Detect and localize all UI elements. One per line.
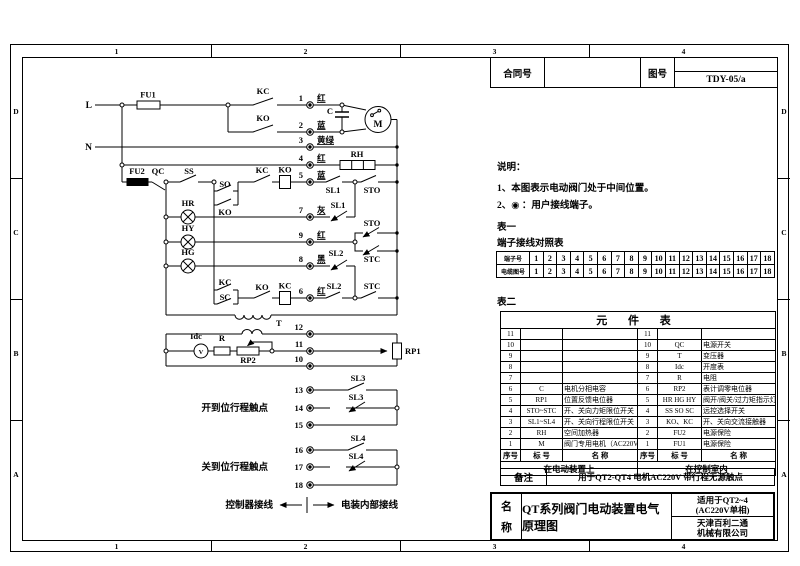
- name-label-char: 称: [492, 519, 521, 535]
- title-strip: 合同号 图号 TDY-05/a: [490, 57, 778, 88]
- table1-cell: 2: [543, 252, 557, 265]
- table1-row-label: 电缆图号: [497, 265, 530, 278]
- table1-cell: 12: [679, 265, 693, 278]
- table2-cell: 开度表: [702, 362, 776, 373]
- table1-cell: 18: [761, 252, 775, 265]
- table2-cell: QC: [658, 340, 702, 351]
- table1-cell: 6: [597, 252, 611, 265]
- table2-cell: 电阻: [702, 373, 776, 384]
- zone-divider: [589, 541, 590, 552]
- table2-cell: 电源保险: [702, 428, 776, 439]
- zone-divider: [400, 541, 401, 552]
- table1-cell: 3: [557, 252, 571, 265]
- zone-label-left: B: [10, 347, 22, 360]
- table2-cell: 9: [638, 351, 658, 362]
- table2-cell: 9: [501, 351, 521, 362]
- table2-cell: 空间加热器: [563, 428, 638, 439]
- table2-cell: R: [658, 373, 702, 384]
- table2-cell: 4: [501, 406, 521, 417]
- table2-cell: 开、关向力矩限位开关: [563, 406, 638, 417]
- table2-cell: 11: [638, 329, 658, 340]
- company-line: 天津百利二通: [697, 518, 748, 529]
- table1-cell: 12: [679, 252, 693, 265]
- table2-cell: 11: [501, 329, 521, 340]
- component-table: 元 件 表 11111010QC电源开关99T变压器88Idc开度表77R电阻6…: [500, 311, 776, 476]
- table2-cell: M: [521, 439, 563, 450]
- table2-cell: FU1: [658, 439, 702, 450]
- table1-cell: 3: [557, 265, 571, 278]
- table2-cell: 电源保险: [702, 439, 776, 450]
- zone-label-left: C: [10, 226, 22, 239]
- table2-cell: 10: [501, 340, 521, 351]
- table1-cell: 16: [733, 252, 747, 265]
- zone-label-top: 2: [293, 45, 318, 58]
- table2-header-cell: 名 称: [702, 450, 776, 462]
- table2-cell: [563, 362, 638, 373]
- table1-cell: 10: [652, 252, 666, 265]
- table2-cell: 变压器: [702, 351, 776, 362]
- table2-cell: [563, 329, 638, 340]
- table2-cell: C: [521, 384, 563, 395]
- table1-row-label: 端子号: [497, 252, 530, 265]
- table2-cell: [563, 340, 638, 351]
- table2-cell: 8: [501, 362, 521, 373]
- table1-cell: 8: [625, 252, 639, 265]
- company-line: 机械有限公司: [697, 528, 748, 539]
- drawing-no-cell: TDY-05/a: [675, 58, 777, 87]
- contract-no-value: [545, 58, 641, 87]
- note-item: 1、本图表示电动阀门处于中间位置。: [497, 181, 777, 198]
- zone-label-left: D: [10, 105, 22, 118]
- table1-cell: 4: [570, 252, 584, 265]
- table2-cell: 7: [501, 373, 521, 384]
- name-label-char: 名: [492, 498, 521, 514]
- table2-cell: 5: [501, 395, 521, 406]
- zone-divider: [589, 44, 590, 57]
- zone-label-left: A: [10, 468, 22, 481]
- company-cell: 天津百利二通 机械有限公司: [672, 517, 773, 539]
- table2-cell: 1: [638, 439, 658, 450]
- table1-cell: 14: [706, 252, 720, 265]
- zone-divider: [10, 178, 22, 179]
- zone-label-bottom: 4: [671, 540, 696, 553]
- component-table-title: 元 件 表: [501, 312, 776, 329]
- table1-cell: 14: [706, 265, 720, 278]
- engineering-drawing-sheet: L N FU1 KC KO C M RH FU2 QC SS SO KO KC …: [0, 0, 800, 566]
- drawing-no-label: 图号: [641, 58, 675, 87]
- table2-cell: SL1~SL4: [521, 417, 563, 428]
- table1-cell: 1: [530, 265, 544, 278]
- table2-cell: [702, 329, 776, 340]
- table2-cell: [563, 373, 638, 384]
- table2-header-cell: 标 号: [658, 450, 702, 462]
- table2-cell: FU2: [658, 428, 702, 439]
- table1-cell: 5: [584, 252, 598, 265]
- zone-label-bottom: 1: [104, 540, 129, 553]
- table1-cell: 13: [693, 252, 707, 265]
- table1-cell: 1: [530, 252, 544, 265]
- table2-cell: 位置反馈电位器: [563, 395, 638, 406]
- table1-cell: 9: [638, 265, 652, 278]
- table1-cell: 7: [611, 252, 625, 265]
- table1-cell: 18: [761, 265, 775, 278]
- table1-cell: 11: [665, 252, 679, 265]
- table2-cell: 10: [638, 340, 658, 351]
- table2-cell: 阀开/阀关/过力矩指示灯: [702, 395, 776, 406]
- table2-caption: 表二: [497, 294, 516, 308]
- table2-cell: 电机分相电容: [563, 384, 638, 395]
- table1-title: 端子接线对照表: [497, 235, 564, 249]
- table2-header-cell: 名 称: [563, 450, 638, 462]
- applicable-model-line: 适用于QT2~4: [697, 495, 748, 506]
- table1-cell: 10: [652, 265, 666, 278]
- table2-cell: 2: [501, 428, 521, 439]
- table2-cell: 表计调零电位器: [702, 384, 776, 395]
- name-label: 名 称: [492, 494, 522, 539]
- remarks-text: 用于QT2-QT4 电机AC220V 带行程无源触点: [547, 469, 774, 485]
- table2-cell: 电源开关: [702, 340, 776, 351]
- remarks-label: 备注: [501, 469, 547, 485]
- contract-no-label: 合同号: [491, 58, 545, 87]
- table2-header-cell: 序号: [501, 450, 521, 462]
- table1-cell: 15: [720, 265, 734, 278]
- zone-label-right: C: [778, 226, 790, 239]
- table2-cell: SS SO SC: [658, 406, 702, 417]
- remarks-row: 备注 用于QT2-QT4 电机AC220V 带行程无源触点: [500, 468, 775, 486]
- table2-cell: 开、关向行程限位开关: [563, 417, 638, 428]
- zone-divider: [778, 299, 790, 300]
- table2-cell: 8: [638, 362, 658, 373]
- drawing-no-value: TDY-05/a: [675, 72, 777, 87]
- drawing-title: QT系列阀门电动装置电气原理图: [522, 494, 672, 539]
- zone-divider: [211, 44, 212, 57]
- table2-cell: [521, 329, 563, 340]
- table1-cell: 17: [747, 252, 761, 265]
- table2-cell: HR HG HY: [658, 395, 702, 406]
- table1-cell: 13: [693, 265, 707, 278]
- table2-cell: 阀门专用电机（AC220V）: [563, 439, 638, 450]
- table1-cell: 4: [570, 265, 584, 278]
- table2-cell: 5: [638, 395, 658, 406]
- zone-label-right: B: [778, 347, 790, 360]
- table2-cell: RH: [521, 428, 563, 439]
- zone-divider: [778, 420, 790, 421]
- drawing-no-upper-cell: [675, 58, 777, 72]
- table2-cell: 1: [501, 439, 521, 450]
- table2-cell: 6: [638, 384, 658, 395]
- table1-cell: 11: [665, 265, 679, 278]
- table2-cell: [521, 351, 563, 362]
- table2-cell: [658, 329, 702, 340]
- table2-cell: [563, 351, 638, 362]
- table2-cell: 6: [501, 384, 521, 395]
- table1-cell: 16: [733, 265, 747, 278]
- table2-cell: 远控选择开关: [702, 406, 776, 417]
- table2-cell: Idc: [658, 362, 702, 373]
- zone-divider: [400, 44, 401, 57]
- table2-cell: 3: [501, 417, 521, 428]
- table2-cell: 7: [638, 373, 658, 384]
- notes-title: 说明：: [497, 160, 777, 177]
- zone-label-bottom: 3: [482, 540, 507, 553]
- table2-cell: RP2: [658, 384, 702, 395]
- title-block: 名 称 QT系列阀门电动装置电气原理图 适用于QT2~4 (AC220V单相) …: [490, 492, 775, 541]
- table2-cell: 开、关向交流接触器: [702, 417, 776, 428]
- table2-cell: STO~STC: [521, 406, 563, 417]
- zone-label-top: 1: [104, 45, 129, 58]
- table2-cell: KO、KC: [658, 417, 702, 428]
- table1-cell: 7: [611, 265, 625, 278]
- table1-cell: 6: [597, 265, 611, 278]
- zone-divider: [10, 299, 22, 300]
- table2-cell: RP1: [521, 395, 563, 406]
- note-item: 2、◉ ：用户接线端子。: [497, 198, 777, 215]
- table2-cell: [521, 340, 563, 351]
- applicable-model-line: (AC220V单相): [696, 505, 750, 516]
- terminal-cross-reference-table: 端子号123456789101112131415161718电缆图号123456…: [496, 251, 775, 278]
- zone-divider: [10, 420, 22, 421]
- zone-divider: [778, 178, 790, 179]
- table1-caption: 表一: [497, 219, 516, 233]
- table2-cell: T: [658, 351, 702, 362]
- table2-header-cell: 序号: [638, 450, 658, 462]
- zone-label-right: A: [778, 468, 790, 481]
- zone-divider: [211, 541, 212, 552]
- table2-cell: 2: [638, 428, 658, 439]
- table1-cell: 8: [625, 265, 639, 278]
- table2-header-cell: 标 号: [521, 450, 563, 462]
- table1-cell: 9: [638, 252, 652, 265]
- table2-cell: 3: [638, 417, 658, 428]
- zone-label-bottom: 2: [293, 540, 318, 553]
- zone-label-right: D: [778, 105, 790, 118]
- applicable-model-cell: 适用于QT2~4 (AC220V单相): [672, 494, 773, 517]
- table2-cell: [521, 362, 563, 373]
- table1-cell: 17: [747, 265, 761, 278]
- table1-cell: 2: [543, 265, 557, 278]
- notes-block: 说明： 1、本图表示电动阀门处于中间位置。 2、◉ ：用户接线端子。: [497, 160, 777, 215]
- table2-cell: [521, 373, 563, 384]
- table1-cell: 5: [584, 265, 598, 278]
- table1-cell: 15: [720, 252, 734, 265]
- table2-cell: 4: [638, 406, 658, 417]
